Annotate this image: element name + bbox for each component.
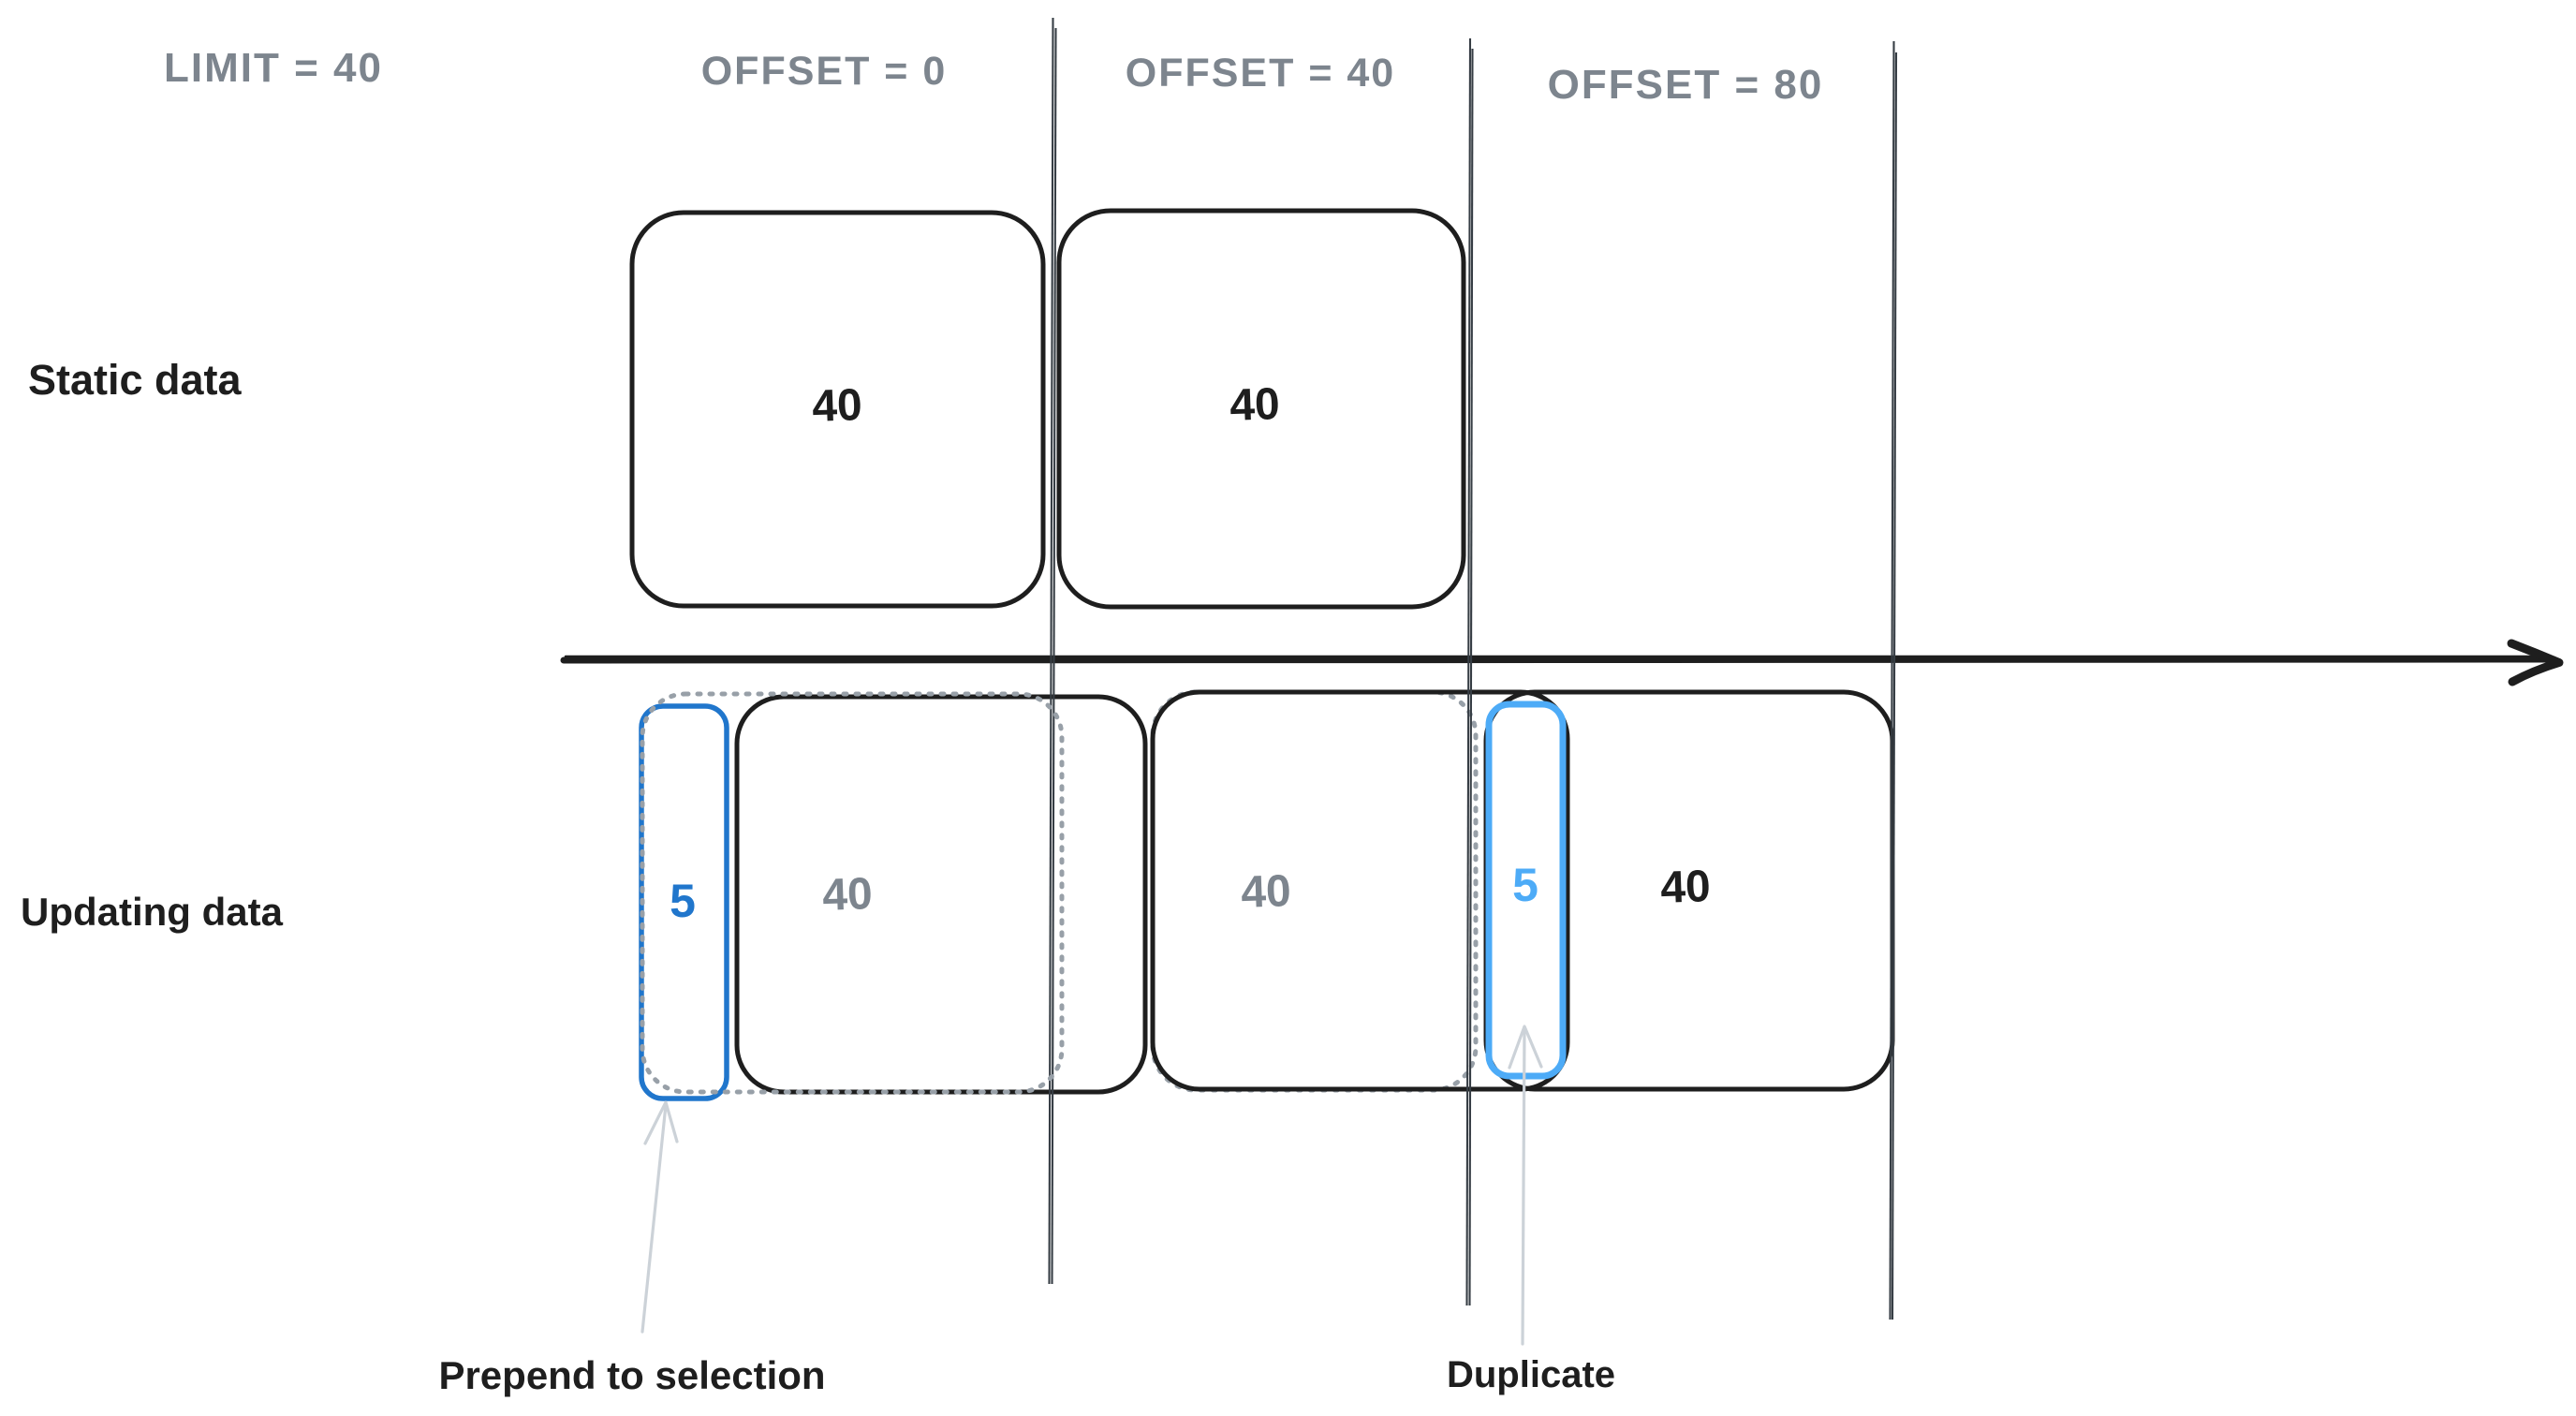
svg-text:OFFSET = 0: OFFSET = 0: [701, 49, 948, 94]
svg-text:40: 40: [811, 380, 862, 432]
svg-text:40: 40: [1240, 866, 1291, 918]
svg-text:40: 40: [821, 869, 873, 921]
svg-text:Updating data: Updating data: [21, 890, 284, 934]
svg-text:5: 5: [1512, 859, 1538, 911]
svg-text:Static data: Static data: [28, 356, 243, 404]
svg-text:Prepend to selection: Prepend to selection: [438, 1353, 825, 1397]
svg-text:OFFSET = 80: OFFSET = 80: [1548, 62, 1824, 108]
svg-text:40: 40: [1659, 862, 1711, 913]
svg-text:Duplicate: Duplicate: [1447, 1354, 1615, 1395]
svg-text:OFFSET = 40: OFFSET = 40: [1126, 51, 1395, 96]
svg-text:LIMIT = 40: LIMIT = 40: [164, 45, 383, 91]
svg-text:40: 40: [1229, 379, 1280, 431]
svg-text:5: 5: [670, 875, 696, 927]
